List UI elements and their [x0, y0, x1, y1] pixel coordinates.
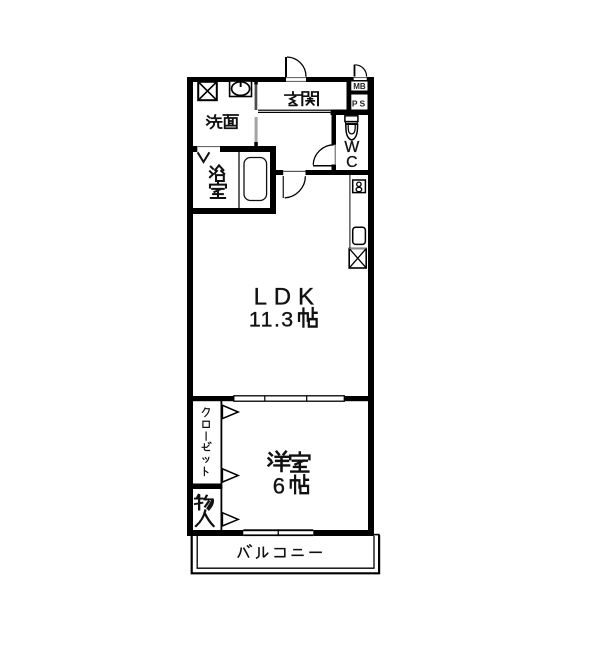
svg-text:C: C: [346, 154, 357, 171]
svg-text:3: 3: [281, 307, 293, 331]
svg-text:11.: 11.: [249, 307, 282, 331]
svg-text:6: 6: [273, 473, 285, 498]
svg-text:PS: PS: [352, 99, 367, 109]
svg-text:MB: MB: [353, 82, 366, 91]
